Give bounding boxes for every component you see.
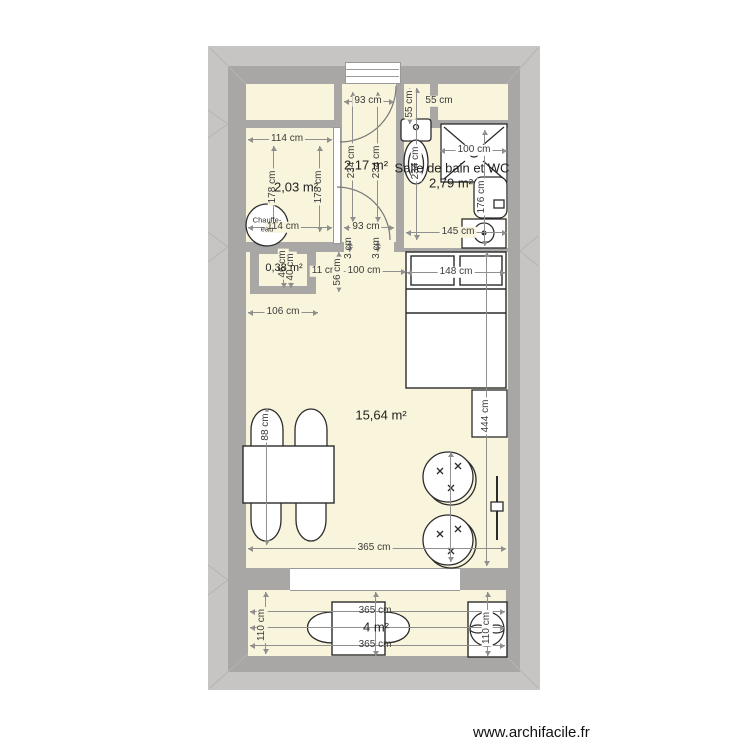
room-label-balcony[interactable]: 4 m² <box>363 620 389 635</box>
dim-label: 93 cm <box>352 96 383 107</box>
watermark: www.archifacile.fr <box>473 724 590 741</box>
room-label-bathroom-name[interactable]: Salle de bain et WC <box>395 161 510 176</box>
dining-table[interactable] <box>243 446 334 503</box>
dim-label: 93 cm <box>350 222 381 233</box>
dim-label: 55 cm <box>405 88 416 119</box>
floor-plan-canvas: 93 cm 55 cm 55 cm 114 cm 178 cm 178 cm 2… <box>0 0 750 750</box>
dim-label: 56 cm <box>333 256 344 287</box>
dim-label: 3 cm <box>372 235 383 261</box>
dim-label: 365 cm <box>356 543 393 554</box>
dim-label: 176 cm <box>477 179 488 216</box>
dim-label: 148 cm <box>438 267 475 278</box>
dim-label: 106 cm <box>265 307 302 318</box>
water-heater-label: Chauffe-eau <box>253 216 282 233</box>
room-label-closet[interactable]: 0,38 m² <box>265 262 302 274</box>
dim-label: 145 cm <box>440 227 477 238</box>
dim-label: 100 cm <box>346 266 383 277</box>
room-label-living[interactable]: 15,64 m² <box>355 408 406 423</box>
dim-label: 88 cm <box>261 411 272 442</box>
room-label-bathroom-area[interactable]: 2,79 m² <box>429 176 473 191</box>
room-label-hallway[interactable]: 2,17 m² <box>344 158 388 173</box>
dim-label: 114 cm <box>269 134 305 145</box>
dim-label: 110 cm <box>257 607 268 643</box>
dim-label: 444 cm <box>481 398 492 435</box>
dim-label: 100 cm <box>456 145 493 156</box>
dim-label: 55 cm <box>423 96 454 107</box>
dim-label: 365 cm <box>357 640 394 651</box>
dim-label: 365 cm <box>357 606 394 617</box>
room-label-storage[interactable]: 2,03 m² <box>274 180 318 195</box>
dim-line <box>450 452 451 562</box>
dim-label: 110 cm <box>482 610 493 646</box>
tv[interactable] <box>491 476 503 540</box>
dim-label: 3 cm <box>344 235 355 261</box>
water-heater-line2: eau <box>261 224 274 233</box>
